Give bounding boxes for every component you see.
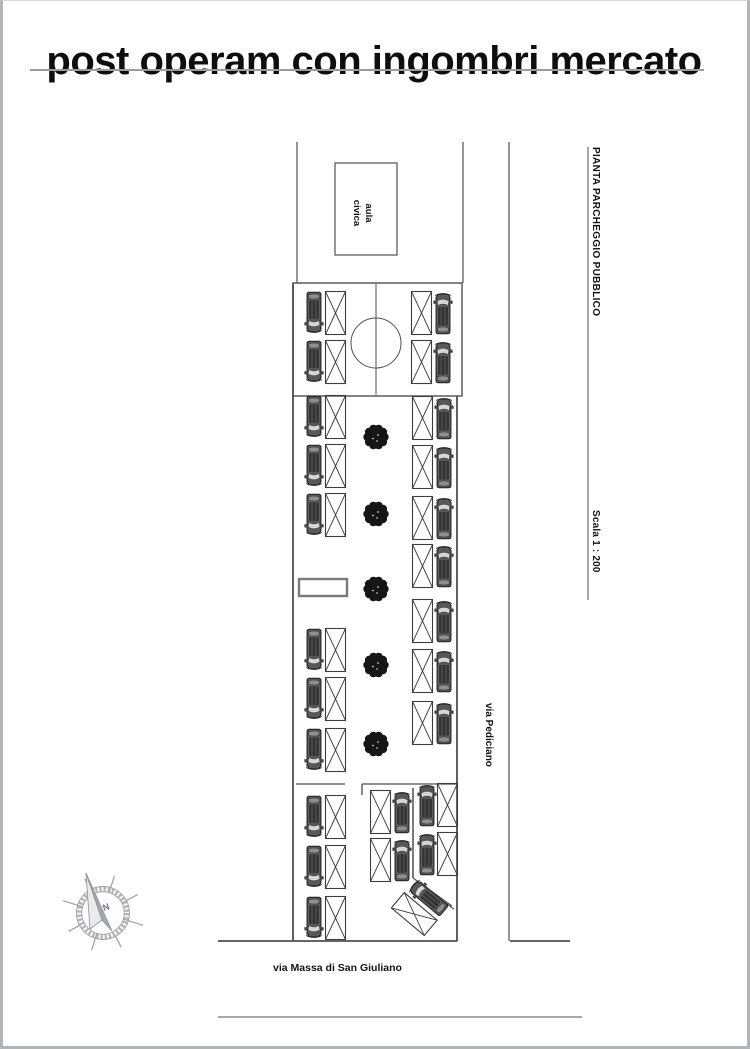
- stall-x-box: [371, 791, 391, 834]
- parking-stall-unit: [304, 292, 345, 335]
- tree-icon: [363, 732, 388, 757]
- car-icon: [304, 445, 323, 485]
- stall-x-box: [326, 729, 346, 772]
- tree-icon: [363, 502, 388, 527]
- stall-x-box: [412, 292, 432, 335]
- car-icon: [433, 343, 452, 383]
- stall-x-box: [326, 629, 346, 672]
- stall-x-box: [326, 846, 346, 889]
- car-icon: [433, 294, 452, 334]
- stall-x-box: [413, 702, 433, 745]
- car-icon: [417, 786, 436, 826]
- stall-x-box: [413, 600, 433, 643]
- stall-x-box: [413, 497, 433, 540]
- car-icon: [434, 652, 453, 692]
- ramp-outline: [299, 579, 347, 596]
- stall-x-box: [438, 784, 458, 827]
- parking-stall-unit: [417, 833, 457, 876]
- stall-x-box: [438, 833, 458, 876]
- stall-x-box: [413, 650, 433, 693]
- car-icon: [434, 704, 453, 744]
- stall-x-box: [326, 678, 346, 721]
- parking-stall-unit: [413, 600, 454, 643]
- parking-stall-unit: [304, 396, 345, 439]
- parking-stall-unit: [304, 341, 345, 384]
- car-icon: [434, 399, 453, 439]
- car-icon: [304, 897, 323, 937]
- parking-stall-unit: [304, 494, 345, 537]
- tree-icon: [363, 653, 388, 678]
- car-icon: [434, 602, 453, 642]
- car-icon: [304, 396, 323, 436]
- parking-stall-unit: [413, 545, 454, 588]
- stall-x-box: [413, 397, 433, 440]
- stall-x-box: [326, 494, 346, 537]
- stall-x-box: [326, 796, 346, 839]
- parking-stall-unit: [371, 839, 412, 882]
- stall-x-box: [371, 839, 391, 882]
- parking-stall-unit: [412, 292, 453, 335]
- parking-stall-unit: [413, 497, 454, 540]
- parking-stall-unit: [304, 796, 345, 839]
- stall-x-box: [326, 897, 346, 940]
- street-label-via-pediciano: via Pediciano: [483, 703, 494, 767]
- scale-label: Scala 1 : 200: [590, 510, 601, 573]
- car-icon: [392, 841, 411, 881]
- car-icon: [417, 835, 436, 875]
- site-plan-drawing: N: [0, 0, 750, 1049]
- car-icon: [304, 846, 323, 886]
- car-icon: [434, 547, 453, 587]
- building-label: aula civica: [350, 196, 374, 230]
- car-icon: [434, 448, 453, 488]
- car-icon: [304, 678, 323, 718]
- parking-stall-unit: [413, 702, 454, 745]
- tree-icon: [363, 577, 388, 602]
- parking-stall-unit: [304, 629, 345, 672]
- stall-x-box: [413, 545, 433, 588]
- compass-rose-icon: N: [63, 873, 143, 950]
- tree-icon: [363, 425, 388, 450]
- parking-stall-unit: [413, 397, 454, 440]
- stall-x-box: [326, 445, 346, 488]
- stall-x-box: [326, 341, 346, 384]
- parking-stall-unit: [413, 446, 454, 489]
- car-icon: [304, 341, 323, 381]
- car-icon: [392, 793, 411, 833]
- car-icon: [304, 729, 323, 769]
- stall-x-box: [326, 396, 346, 439]
- parking-stall-unit: [304, 846, 345, 889]
- parking-stall-unit: [304, 445, 345, 488]
- car-icon: [304, 796, 323, 836]
- car-icon: [434, 499, 453, 539]
- parking-stall-unit: [391, 876, 450, 935]
- car-icon: [304, 292, 323, 332]
- stall-x-box: [326, 292, 346, 335]
- street-label-via-massa: via Massa di San Giuliano: [273, 962, 402, 974]
- parking-stall-unit: [304, 729, 345, 772]
- drawing-title-label: PIANTA PARCHEGGIO PUBBLICO: [590, 147, 601, 316]
- stall-x-box: [413, 446, 433, 489]
- parking-stall-unit: [371, 791, 412, 834]
- car-icon: [304, 494, 323, 534]
- parking-stall-unit: [417, 784, 457, 827]
- car-icon: [304, 629, 323, 669]
- parking-stall-unit: [413, 650, 454, 693]
- stall-x-box: [412, 341, 432, 384]
- parking-stall-unit: [304, 897, 345, 940]
- parking-stall-unit: [304, 678, 345, 721]
- parking-stall-unit: [412, 341, 453, 384]
